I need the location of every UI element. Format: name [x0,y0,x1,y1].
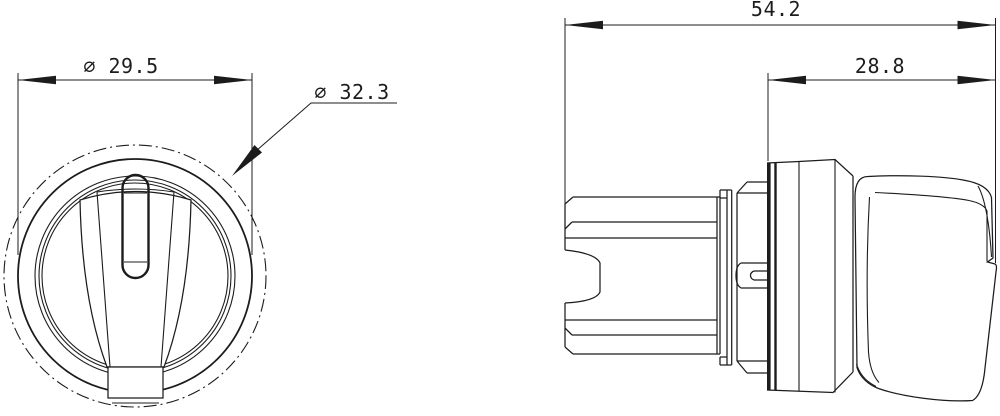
dim-front-depth: 28.8 [768,54,996,161]
arrowhead-left [768,76,806,84]
side-mounting-flange [720,190,732,365]
leader-line [256,103,397,151]
arrowhead-right [214,76,252,84]
latch-pin [736,263,767,288]
side-adapter-nut [736,182,767,373]
dim-bezel-diameter: ⌀ 32.3 [232,80,397,176]
bezel-body-lines [799,160,835,393]
rear-holder-outline [565,197,720,354]
arrowhead-right [958,76,996,84]
front-view [4,145,266,407]
arrowhead-right [958,21,996,29]
flange-plate [720,190,732,365]
side-rear-holder [565,197,720,354]
leader-arrowhead [232,145,262,176]
lever-body [80,192,191,368]
dim-bezel-diameter-label: ⌀ 32.3 [314,80,389,104]
technical-drawing-page: ⌀ 29.5 ⌀ 32.3 54.2 28.8 [0,0,1000,416]
technical-drawing-canvas: ⌀ 29.5 ⌀ 32.3 54.2 28.8 [0,0,1000,416]
lever-bottom-tab [108,367,163,398]
side-knob [855,176,997,401]
arrowhead-left [565,21,603,29]
side-front-bezel [767,160,853,393]
dim-overall-depth-label: 54.2 [751,0,801,21]
dim-front-depth-label: 28.8 [855,54,905,78]
side-view [565,160,997,401]
bezel-front-face [767,163,771,390]
bezel-outline [767,160,853,393]
adapter-nut-outline [737,182,767,373]
arrowhead-left [18,76,56,84]
dim-knob-diameter-label: ⌀ 29.5 [83,54,158,78]
knob-outline [855,176,997,401]
